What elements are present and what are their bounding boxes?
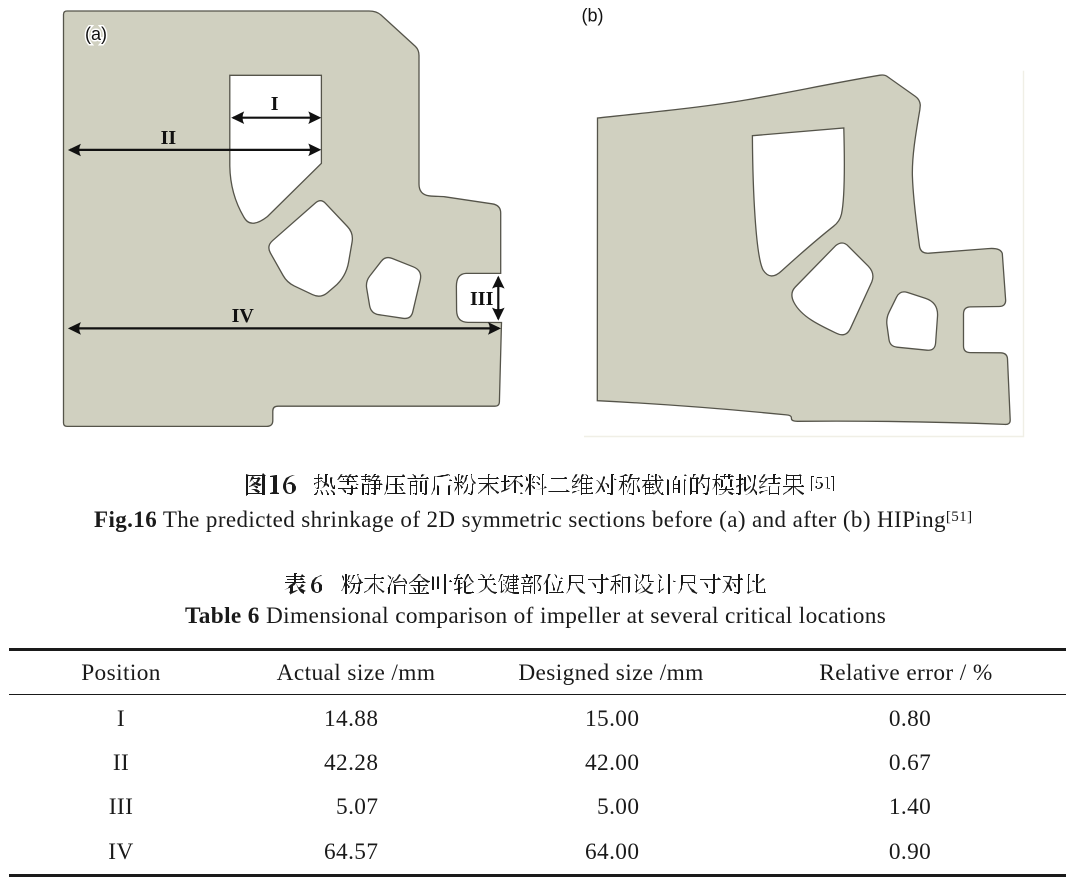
svg-text:(b): (b) — [582, 6, 604, 26]
svg-text:(a): (a) — [85, 24, 107, 44]
svg-text:III: III — [470, 288, 494, 310]
svg-text:IV: IV — [232, 305, 255, 327]
svg-text:II: II — [161, 127, 177, 149]
svg-text:I: I — [271, 93, 279, 115]
